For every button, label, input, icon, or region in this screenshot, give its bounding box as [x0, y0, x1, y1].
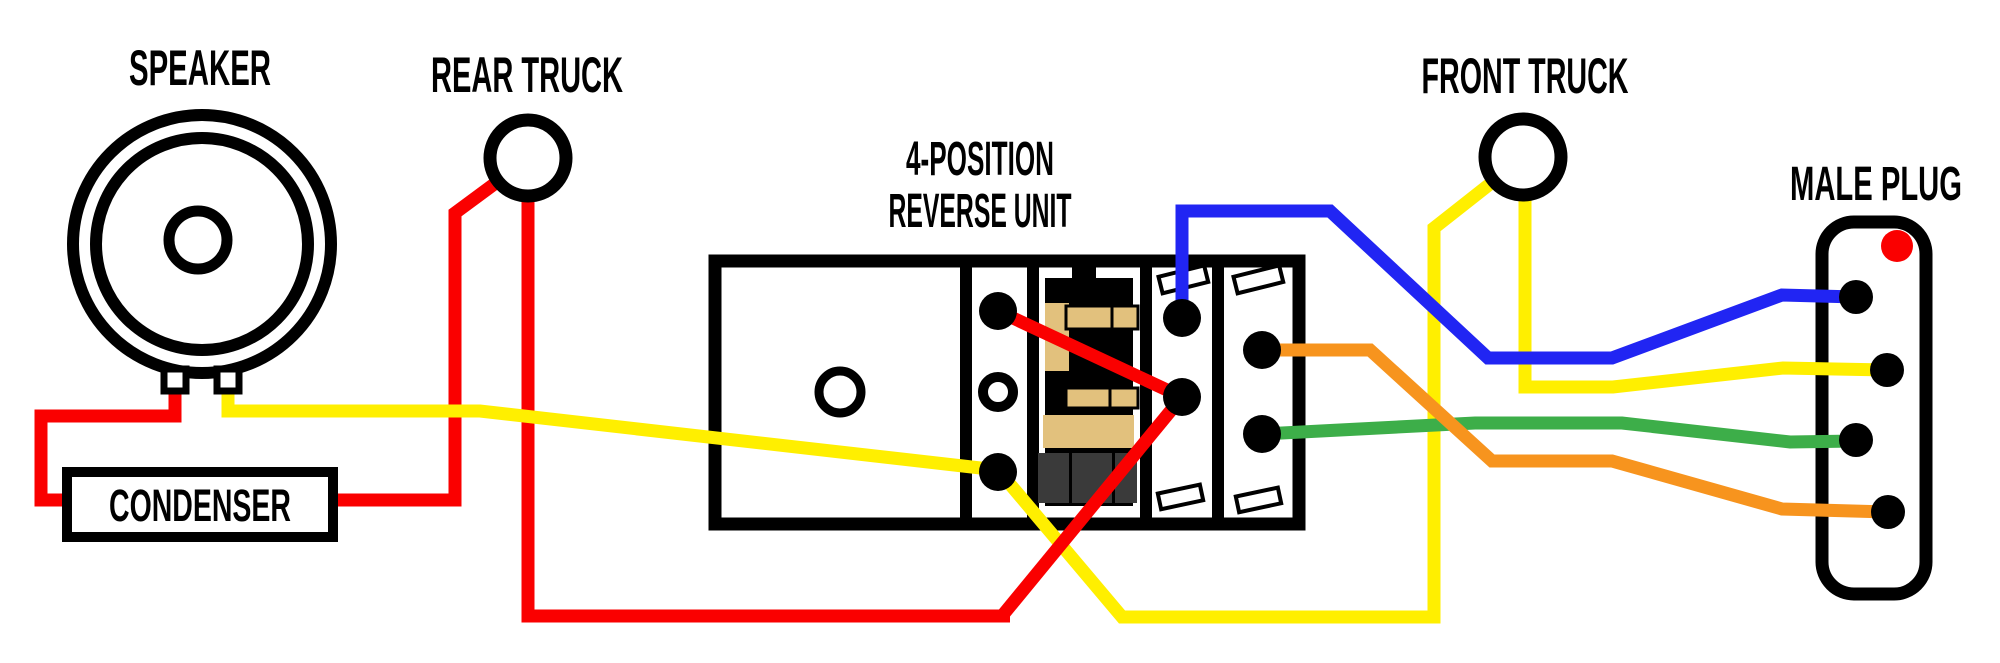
plug-pin-2 [1870, 353, 1904, 387]
wiring-diagram: SPEAKER REAR TRUCK FRONT TRUCK 4-POSITIO… [0, 0, 2000, 663]
speaker-hub [169, 211, 227, 269]
coil-contact [1112, 306, 1138, 329]
plug-pin-1 [1839, 280, 1873, 314]
diagram-canvas: SPEAKER REAR TRUCK FRONT TRUCK 4-POSITIO… [0, 0, 2000, 663]
reverse-unit-terminal-top [979, 292, 1017, 330]
rear-truck-label: REAR TRUCK [431, 47, 623, 103]
coil-contact [1066, 306, 1113, 329]
reverse-unit-divider-4 [1212, 262, 1224, 518]
reverse-unit-divider-2 [1027, 262, 1039, 518]
speaker-label: SPEAKER [129, 40, 271, 96]
male-plug-body [1822, 222, 1926, 594]
wire-green-reverse-unit-to-plug [1262, 423, 1856, 442]
reverse-unit-terminal-junction [1163, 378, 1201, 416]
reverse-unit-terminal-bottom [979, 453, 1017, 491]
plug-pin-4 [1871, 495, 1905, 529]
plug-key-indicator [1881, 230, 1913, 262]
plug-pin-3 [1839, 423, 1873, 457]
reverse-unit-terminal-green [1243, 415, 1281, 453]
speaker-terminal-right [217, 369, 239, 391]
coil-contact [1110, 388, 1138, 408]
front-truck-ring [1485, 119, 1561, 195]
reverse-unit-terminal-orange [1243, 331, 1281, 369]
reverse-unit-label-line2: REVERSE UNIT [889, 185, 1072, 238]
coil-block [1038, 453, 1069, 503]
speaker [73, 115, 331, 391]
speaker-terminal-left [164, 369, 186, 391]
reverse-unit-mount-hole [819, 371, 861, 413]
reverse-unit-divider-1 [960, 262, 972, 518]
coil-contact [1066, 388, 1111, 408]
male-plug-label: MALE PLUG [1790, 158, 1962, 211]
reverse-unit-label-line1: 4-POSITION [906, 133, 1054, 186]
reverse-unit-terminal-blue [1163, 299, 1201, 337]
reverse-unit-divider-3 [1140, 262, 1152, 518]
condenser-label: CONDENSER [109, 480, 291, 531]
reverse-unit-hole [983, 377, 1013, 407]
wire-red-condenser-to-rear-truck [333, 182, 497, 500]
front-truck-label: FRONT TRUCK [1422, 48, 1629, 104]
male-plug [1822, 222, 1926, 594]
coil-tan-base [1043, 415, 1134, 448]
rear-truck-ring [490, 120, 566, 196]
